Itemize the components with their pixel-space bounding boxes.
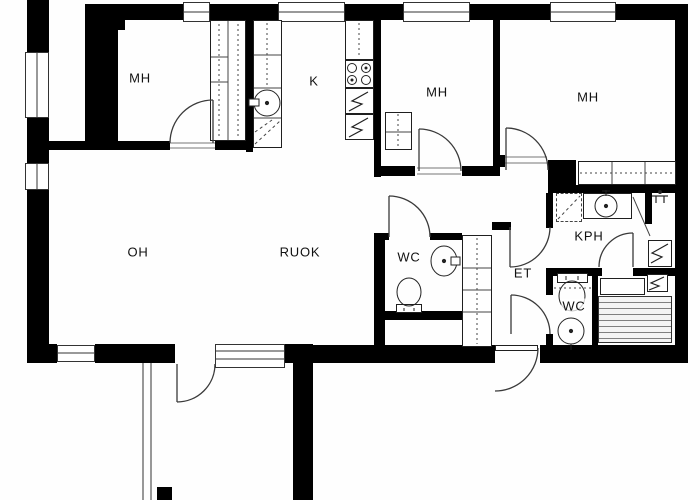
room-label-living: OH — [127, 245, 148, 260]
wall-bottom — [540, 345, 688, 363]
wardrobe-bedroom3-row — [578, 161, 676, 185]
wall-bedroom2-south — [374, 166, 415, 176]
room-label-bathroom: KPH — [574, 229, 603, 244]
room-label-bedroom1: MH — [129, 71, 151, 86]
freezer — [345, 114, 374, 140]
door-toilet1 — [389, 196, 430, 237]
room-label-kitchen: K — [309, 74, 318, 89]
room-label-hallway: ET — [514, 266, 532, 281]
wall-left — [27, 190, 49, 363]
window — [57, 345, 95, 362]
bathroom-counter — [583, 193, 632, 219]
wall-bathroom-north — [548, 185, 676, 193]
window — [403, 2, 470, 22]
door-entrance — [495, 348, 538, 391]
balcony-wall-east — [293, 352, 313, 500]
room-label-bedroom3: MH — [577, 90, 599, 105]
window — [25, 163, 49, 190]
floor-plan: MH K MH MH OH RUOK WC ET KPH WC — [0, 0, 700, 500]
wall-bedroom1-west — [85, 20, 118, 143]
window — [550, 2, 616, 22]
door-bedroom2 — [419, 129, 461, 171]
wall-left — [27, 0, 49, 52]
window — [215, 344, 285, 368]
kitchen-counter — [253, 20, 282, 148]
stove — [345, 60, 374, 88]
toilet2-tank — [557, 273, 588, 283]
wall-bedroom3-south-stub — [493, 155, 505, 167]
window — [278, 2, 345, 22]
window — [25, 52, 49, 118]
wall-shower-divider — [645, 188, 652, 224]
kitchen-tall-cabinet — [345, 20, 374, 60]
wall-bottom — [313, 345, 495, 363]
sauna-stove — [647, 274, 668, 292]
wall-bottom — [27, 344, 57, 363]
room-label-dining: RUOK — [280, 245, 321, 260]
water-heater — [648, 240, 672, 267]
wall-top — [345, 4, 403, 20]
door-bedroom3 — [506, 128, 548, 170]
wall-top — [470, 4, 550, 20]
room-label-toilet2: WC — [561, 299, 586, 314]
wall-hall-door-stub — [492, 222, 511, 230]
wall-bedroom2-east — [493, 20, 500, 176]
entrance-door-leaf — [495, 345, 538, 351]
hall-closet — [462, 235, 492, 347]
wall-kitchen-west — [246, 20, 253, 152]
sauna-benches — [598, 296, 672, 343]
wardrobe-bedroom2 — [385, 112, 412, 150]
balcony-post — [157, 487, 172, 500]
wall-toilet1-north — [430, 233, 462, 240]
sink1-icon — [431, 246, 460, 276]
wall-top — [210, 4, 278, 20]
wall-right — [675, 4, 688, 363]
room-label-toilet1: WC — [397, 250, 420, 265]
wall-bedroom1-south — [49, 141, 170, 150]
wall-bottom — [95, 344, 175, 363]
wardrobe-bedroom1 — [210, 20, 246, 141]
wall-left — [27, 118, 49, 163]
door-balcony — [177, 364, 215, 402]
door-toilet2 — [511, 295, 550, 334]
door-bathroom — [599, 233, 633, 267]
wall-hall-east — [546, 193, 553, 228]
wall-kitchen-east — [374, 20, 381, 177]
wall-hall-east — [546, 334, 553, 345]
wall-bedroom2-south — [462, 166, 497, 176]
door-bedroom1 — [170, 100, 213, 143]
wall-toilet1-west — [374, 233, 385, 363]
sauna-bench — [600, 278, 645, 295]
fridge — [345, 88, 374, 114]
room-label-bedroom2: MH — [426, 85, 448, 100]
washing-machine-space — [556, 193, 582, 222]
door-hallway — [510, 227, 550, 267]
toilet1-tank — [396, 304, 422, 313]
window — [183, 2, 210, 22]
